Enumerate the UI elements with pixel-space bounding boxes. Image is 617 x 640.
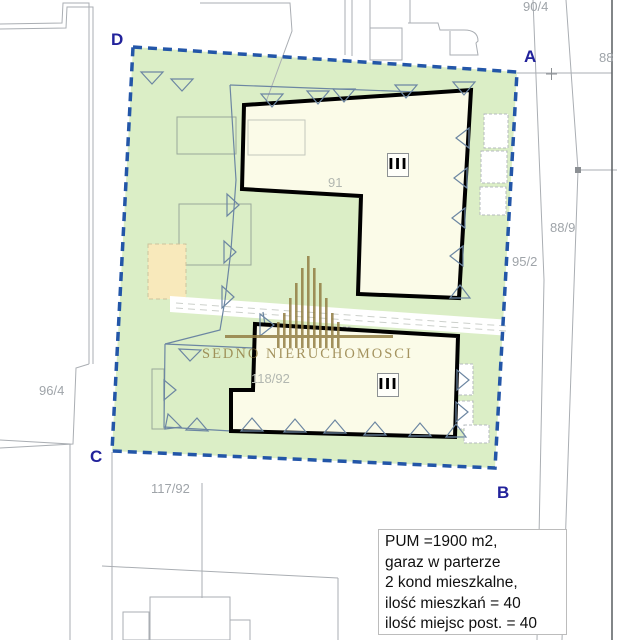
- info-line-parking: ilość miejsc post. = 40: [385, 614, 560, 635]
- parcel-label-95-2: 95/2: [512, 255, 537, 268]
- boundary-corner-d: D: [111, 31, 123, 48]
- parcel-label-88-9: 88/9: [550, 221, 575, 234]
- info-line-flats: ilość mieszkań = 40: [385, 594, 560, 615]
- boundary-corner-c: C: [90, 448, 102, 465]
- boundary-corner-a: A: [524, 48, 536, 65]
- storey-count-badge-bottom: III: [377, 373, 399, 397]
- highlighted-structure: [148, 244, 186, 299]
- parcel-label-88: 88: [599, 51, 613, 64]
- info-box: PUM =1900 m2, garaz w parterze 2 kond mi…: [378, 529, 567, 635]
- info-line-storeys: 2 kond mieszkalne,: [385, 573, 560, 594]
- parcel-label-117-92: 117/92: [151, 482, 190, 495]
- parcel-label-96-4: 96/4: [39, 384, 64, 397]
- info-line-pum: PUM =1900 m2,: [385, 532, 560, 553]
- storey-count-badge-top: III: [387, 153, 409, 177]
- survey-markers: [546, 68, 581, 173]
- watermark-text: SEDNO NIERUCHOMOSCI: [202, 346, 412, 363]
- info-line-garage: garaz w parterze: [385, 553, 560, 574]
- parcel-label-118-92: 118/92: [251, 372, 290, 385]
- parcel-label-90-4: 90/4: [523, 0, 548, 13]
- site-plan: D A B C 90/4 88 88/9 95/2 96/4 117/92 11…: [0, 0, 617, 640]
- parcel-label-91: 91: [328, 176, 342, 189]
- boundary-corner-b: B: [497, 484, 509, 501]
